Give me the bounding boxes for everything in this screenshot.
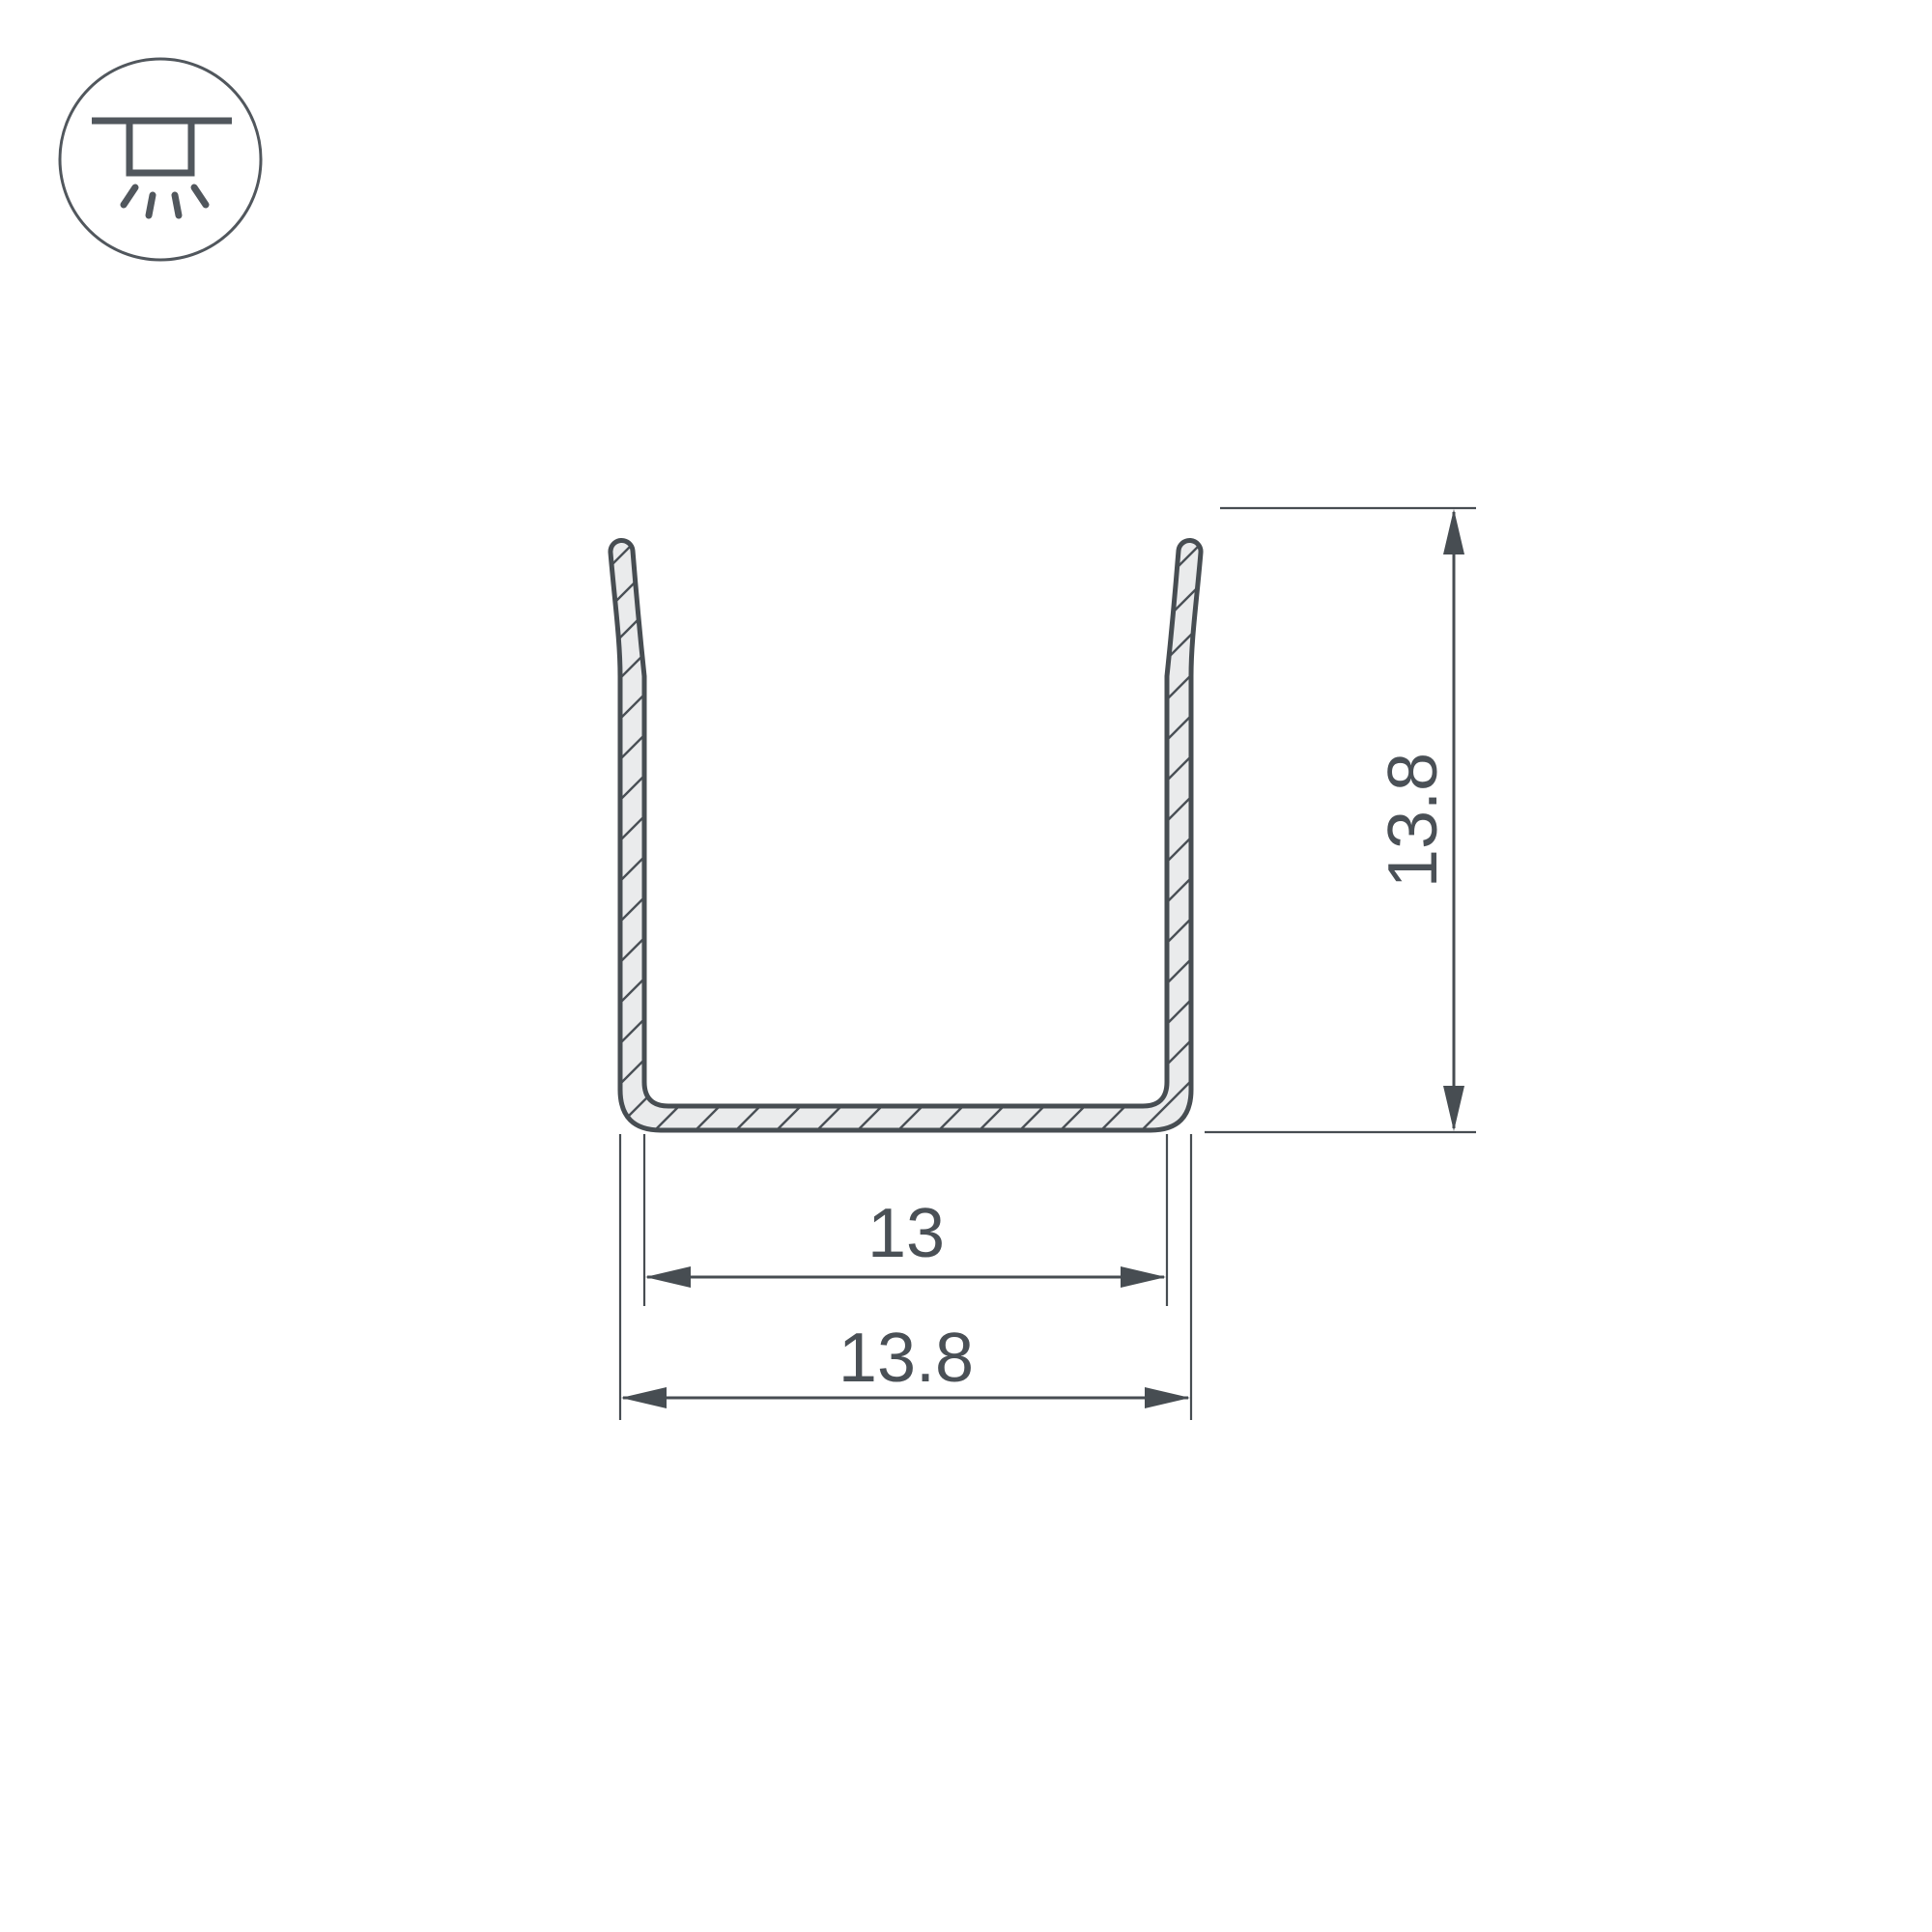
luminaire-box — [129, 121, 191, 173]
technical-drawing: 13.8 13 13.8 — [0, 0, 1932, 1932]
dimension-height: 13.8 — [1205, 508, 1476, 1132]
arrow-right-icon — [1145, 1387, 1190, 1408]
inner-width-dimension-label: 13 — [867, 1195, 945, 1272]
arrow-left-icon — [645, 1266, 691, 1288]
surface-mount-light-icon — [60, 59, 261, 260]
light-rays — [124, 187, 206, 215]
arrow-right-icon — [1121, 1266, 1166, 1288]
profile-body — [611, 540, 1201, 1130]
outer-width-dimension-label: 13.8 — [838, 1320, 974, 1397]
arrow-up-icon — [1443, 509, 1464, 554]
drawing-canvas: 13.8 13 13.8 — [0, 0, 1932, 1932]
dimension-width-inner: 13 — [644, 1134, 1167, 1306]
arrow-down-icon — [1443, 1086, 1464, 1131]
arrow-left-icon — [621, 1387, 667, 1408]
height-dimension-label: 13.8 — [1375, 753, 1452, 888]
profile-cross-section — [611, 540, 1201, 1130]
icon-circle — [60, 59, 261, 260]
